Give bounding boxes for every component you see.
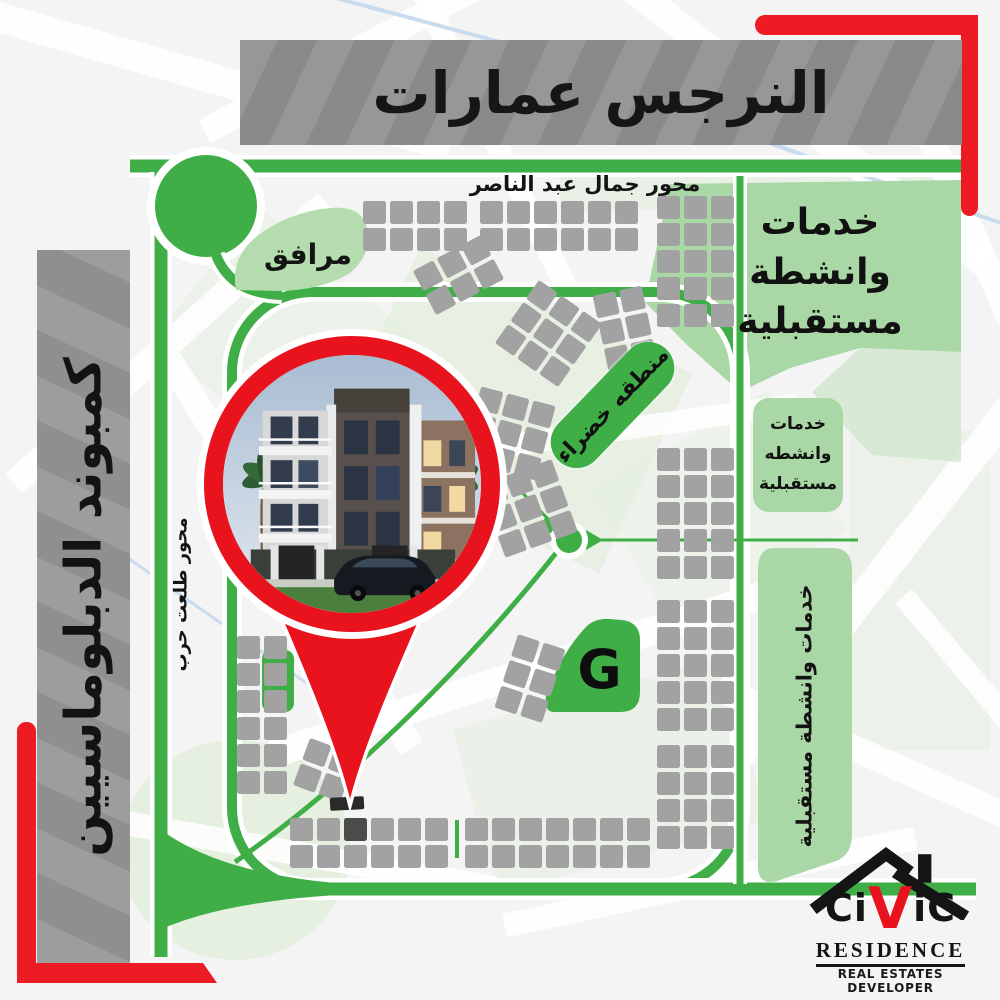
developer-logo: CiViC RESIDENCE REAL ESTATES DEVELOPER — [798, 840, 983, 968]
building-photo — [223, 355, 481, 613]
logo-tagline: REAL ESTATES DEVELOPER — [798, 967, 983, 995]
logo-residence: RESIDENCE — [798, 938, 983, 967]
logo-residence-text: RESIDENCE — [816, 938, 966, 967]
location-pin — [204, 336, 500, 632]
logo-ci: Ci — [825, 886, 868, 930]
logo-ic: iC — [913, 886, 956, 930]
car — [334, 555, 435, 601]
poster-root: محور جمال عبد الناصر محور طلعت حرب مرافق… — [0, 0, 1000, 1000]
logo-v: V — [868, 876, 913, 942]
logo-brand-name: CiViC — [798, 886, 983, 930]
